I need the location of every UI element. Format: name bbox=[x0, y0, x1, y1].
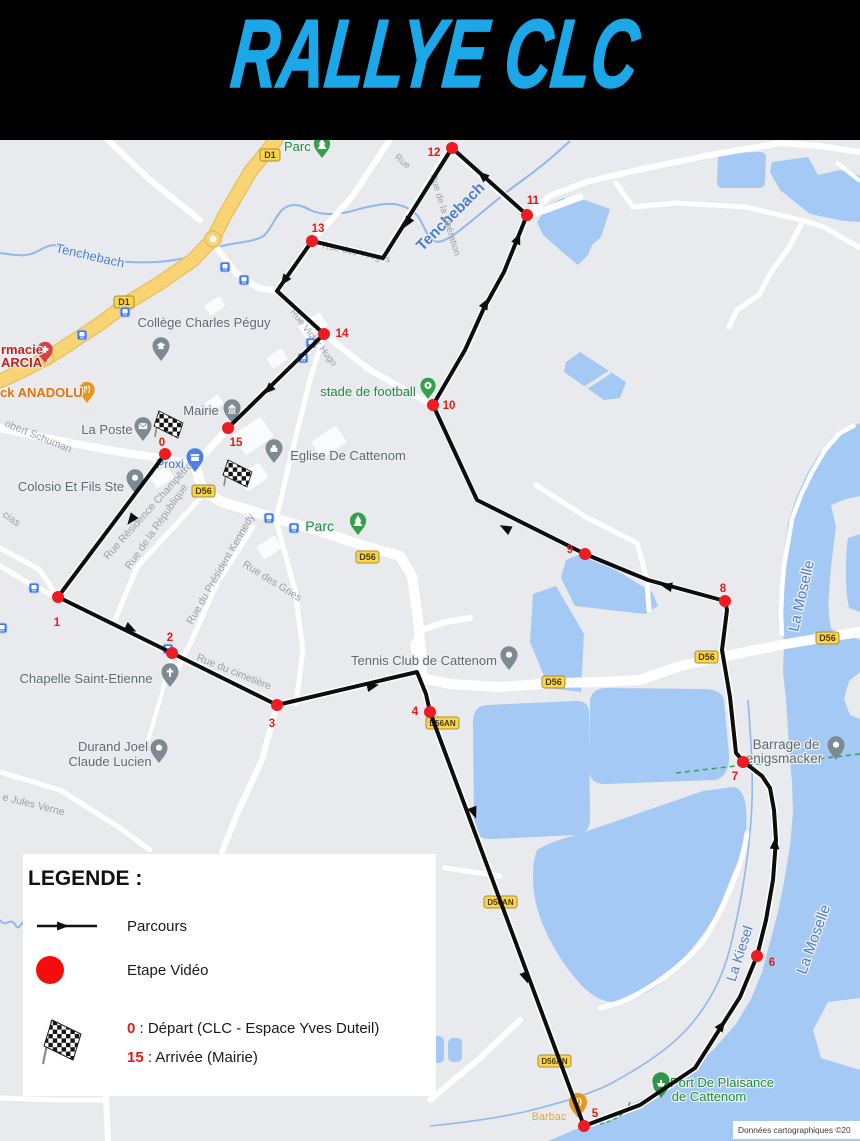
svg-text:Tennis Club de Cattenom: Tennis Club de Cattenom bbox=[351, 653, 497, 668]
svg-text:Durand Joel: Durand Joel bbox=[78, 739, 148, 754]
svg-text:Barrage de: Barrage de bbox=[753, 737, 820, 752]
svg-text:12: 12 bbox=[428, 147, 441, 159]
svg-text:10: 10 bbox=[443, 400, 456, 412]
svg-text:Colosio Et Fils Ste: Colosio Et Fils Ste bbox=[18, 479, 124, 494]
svg-text:11: 11 bbox=[527, 195, 540, 207]
svg-text:Parcours: Parcours bbox=[127, 918, 187, 935]
svg-text:3: 3 bbox=[269, 718, 275, 730]
svg-text:LEGENDE :: LEGENDE : bbox=[28, 867, 142, 890]
svg-text:La Poste: La Poste bbox=[81, 422, 132, 437]
svg-text:13: 13 bbox=[312, 223, 325, 235]
svg-text:D56: D56 bbox=[819, 633, 836, 643]
svg-text:Parc: Parc bbox=[305, 518, 334, 534]
svg-text:Chapelle Saint-Etienne: Chapelle Saint-Etienne bbox=[20, 671, 153, 686]
svg-text:Barbac: Barbac bbox=[532, 1111, 567, 1123]
svg-text:15 : Arrivée (Mairie): 15 : Arrivée (Mairie) bbox=[127, 1049, 258, 1066]
svg-text:D1: D1 bbox=[264, 150, 276, 160]
svg-text:Claude Lucien: Claude Lucien bbox=[68, 754, 151, 769]
svg-text:14: 14 bbox=[336, 328, 349, 340]
svg-text:0 : Départ (CLC - Espace Yves: 0 : Départ (CLC - Espace Yves Duteil) bbox=[127, 1020, 379, 1037]
svg-text:stade de football: stade de football bbox=[320, 384, 416, 399]
svg-text:ARCIA: ARCIA bbox=[1, 355, 43, 370]
svg-text:D56: D56 bbox=[545, 677, 562, 687]
svg-text:Données cartographiques ©20: Données cartographiques ©20 bbox=[738, 1125, 851, 1135]
svg-text:15: 15 bbox=[230, 437, 243, 449]
svg-text:D56: D56 bbox=[359, 552, 376, 562]
svg-text:2: 2 bbox=[167, 632, 173, 644]
svg-text:1: 1 bbox=[54, 617, 61, 629]
svg-text:7: 7 bbox=[732, 771, 738, 783]
svg-text:RALLYE CLC: RALLYE CLC bbox=[227, 0, 646, 108]
svg-text:enigsmacker: enigsmacker bbox=[746, 751, 823, 766]
svg-text:D56AN: D56AN bbox=[541, 1057, 567, 1066]
svg-text:0: 0 bbox=[159, 437, 165, 449]
svg-text:D1: D1 bbox=[118, 297, 130, 307]
svg-text:Eglise De Cattenom: Eglise De Cattenom bbox=[290, 448, 406, 463]
svg-text:D56: D56 bbox=[195, 486, 212, 496]
svg-text:5: 5 bbox=[592, 1108, 599, 1120]
svg-text:Collège Charles Péguy: Collège Charles Péguy bbox=[138, 315, 271, 330]
svg-text:D56: D56 bbox=[698, 652, 715, 662]
svg-text:4: 4 bbox=[412, 706, 419, 718]
svg-text:Etape Vidéo: Etape Vidéo bbox=[127, 962, 208, 979]
svg-text:Parc: Parc bbox=[284, 139, 311, 154]
svg-text:de Cattenom: de Cattenom bbox=[672, 1089, 746, 1104]
svg-text:Mairie: Mairie bbox=[183, 403, 218, 418]
svg-text:9: 9 bbox=[567, 544, 573, 556]
svg-text:6: 6 bbox=[769, 957, 775, 969]
svg-text:ck ANADOLU: ck ANADOLU bbox=[0, 385, 83, 400]
svg-text:Port De Plaisance: Port De Plaisance bbox=[670, 1075, 774, 1090]
svg-text:8: 8 bbox=[720, 583, 727, 595]
